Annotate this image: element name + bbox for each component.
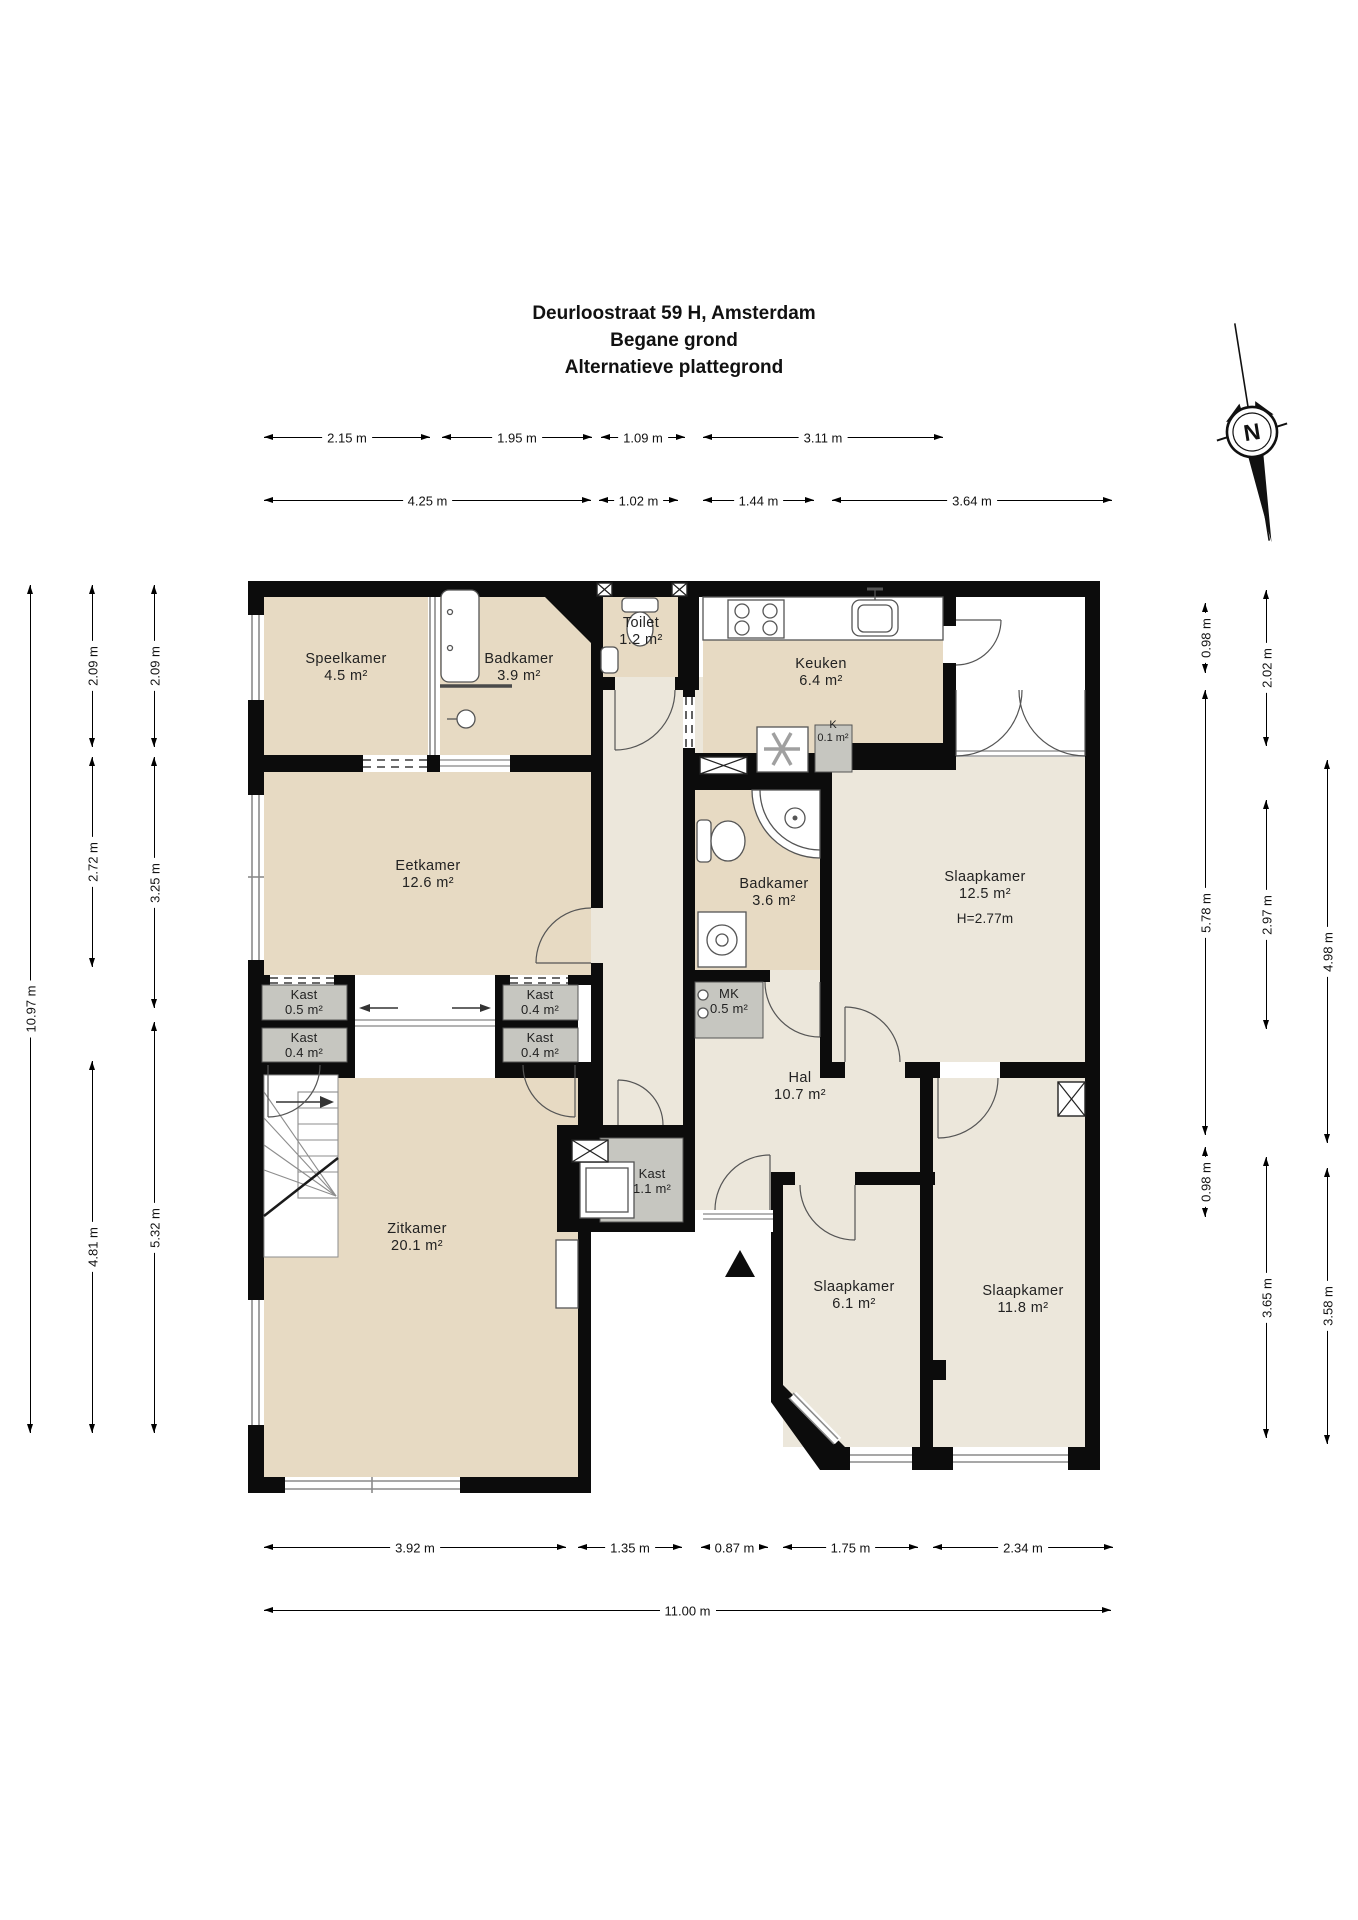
floor-plan-canvas: N [0,0,1358,1920]
room-label-slaapkamer-2: Slaapkamer6.1 m² [813,1279,894,1313]
shaft-icon [672,583,687,596]
fan-unit-icon [757,727,808,772]
room-label-slaapkamer-3: Slaapkamer11.8 m² [982,1283,1063,1317]
dim-top1-3: 1.09 m [601,437,685,438]
dim-top2-1: 4.25 m [264,500,591,501]
dim-bottom1-2: 1.35 m [578,1547,682,1548]
room-label-slaapkamer-1: Slaapkamer12.5 m² H=2.77m [944,869,1025,927]
dim-left-a1: 2.09 m [92,585,93,747]
room-label-zitkamer: Zitkamer20.1 m² [387,1221,447,1255]
toilet-tank [622,598,658,612]
dim-left-a3: 4.81 m [92,1061,93,1433]
compass-north-icon: N [1199,318,1305,549]
toilet-tank-2 [697,820,711,862]
room-label-badkamer: Badkamer3.6 m² [739,876,808,910]
staircase [264,1075,338,1257]
dim-right-b2: 2.97 m [1266,800,1267,1029]
room-floors [264,597,1085,1477]
shaft-icon [572,1140,608,1162]
dim-left-b3: 5.32 m [154,1022,155,1433]
dim-bottom2-1: 11.00 m [264,1610,1111,1611]
sliding-door-arrows [359,1004,491,1012]
boiler-box [580,1162,634,1218]
dim-top2-2: 1.02 m [599,500,678,501]
dim-right-a3: 0.98 m [1205,1147,1206,1217]
room-label-eetkamer: Eetkamer12.6 m² [395,858,460,892]
room-label-kast-k: K0.1 m² [817,719,848,744]
dim-bottom1-5: 2.34 m [933,1547,1113,1548]
dim-left-total: 10.97 m [30,585,31,1433]
dim-top1-4: 3.11 m [703,437,943,438]
radiator [556,1240,578,1308]
room-label-hal: Hal10.7 m² [774,1070,826,1104]
dim-top1-2: 1.95 m [442,437,592,438]
dim-left-a2: 2.72 m [92,757,93,967]
room-label-kast-rechts-boven: Kast0.4 m² [521,987,559,1017]
toilet-sink [601,647,618,673]
dim-top1-1: 2.15 m [264,437,430,438]
dim-bottom1-3: 0.87 m [701,1547,768,1548]
dim-right-c2: 3.58 m [1327,1168,1328,1444]
slaapkamer-3-floor [933,1078,1085,1447]
washing-machine-icon [698,912,746,967]
porch-floor [956,597,1085,757]
shaft-icon [597,583,612,596]
dim-bottom1-4: 1.75 m [783,1547,918,1548]
room-label-mk: MK0.5 m² [710,986,748,1016]
shaft-icon [1058,1082,1085,1116]
dim-top2-4: 3.64 m [832,500,1112,501]
room-label-kast-rechts-onder: Kast0.4 m² [521,1030,559,1060]
room-label-kast-links-boven: Kast0.5 m² [285,987,323,1017]
room-label-keuken: Keuken6.4 m² [795,656,847,690]
room-label-kast-links-onder: Kast0.4 m² [285,1030,323,1060]
toilet-bowl-2 [711,821,745,861]
dim-left-b1: 2.09 m [154,585,155,747]
dim-right-a1: 0.98 m [1205,603,1206,673]
kitchen-counter [703,597,943,640]
shower-head-icon [457,710,475,728]
room-label-kast-hal: Kast1.1 m² [633,1166,671,1196]
dim-right-b1: 2.02 m [1266,590,1267,746]
room-label-badkamer-boven: Badkamer3.9 m² [484,651,553,685]
dim-right-b3: 3.65 m [1266,1157,1267,1438]
dim-right-a2: 5.78 m [1205,690,1206,1135]
dim-right-c1: 4.98 m [1327,760,1328,1143]
dim-left-b2: 3.25 m [154,757,155,1008]
dim-bottom1-1: 3.92 m [264,1547,566,1548]
dim-top2-3: 1.44 m [703,500,814,501]
room-label-speelkamer: Speelkamer4.5 m² [305,651,386,685]
bathtub [441,590,479,682]
shaft-icon [700,757,747,774]
room-label-toilet: Toilet1.2 m² [619,615,663,649]
